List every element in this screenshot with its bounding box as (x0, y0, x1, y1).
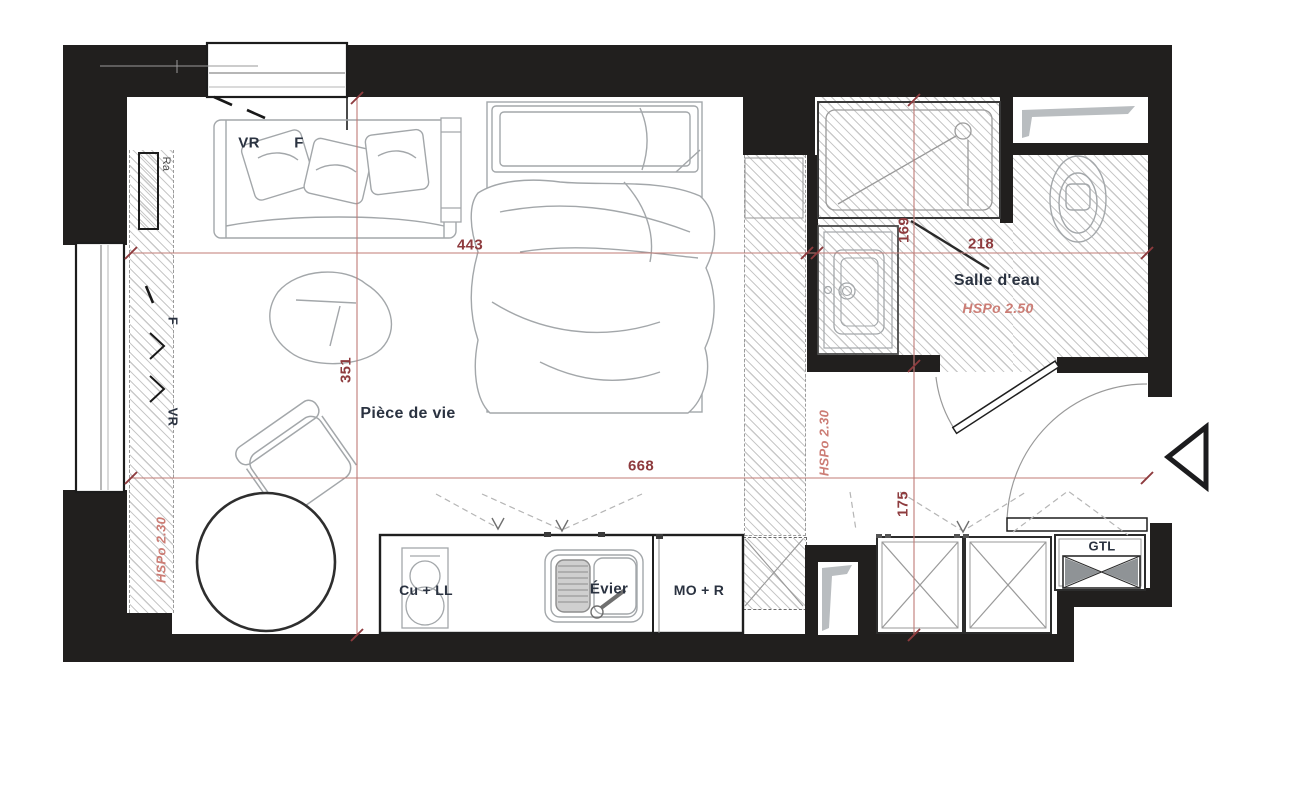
side-shelf (441, 118, 461, 222)
window-top (207, 43, 347, 130)
ceiling-height-middle: HSPo 2.30 (817, 410, 832, 476)
floor-plan: VR F Ra F VR HSPo 2.30 HSPo 2.30 Pièce d… (0, 0, 1314, 800)
dim-living-width: 443 (457, 237, 483, 254)
blind-label-left: VR (166, 408, 181, 427)
closet-hatched-x (745, 539, 803, 606)
window-label-left: F (166, 317, 181, 325)
entry-door (1007, 384, 1147, 531)
window-label-top: F (294, 135, 303, 152)
entrance-arrow-icon (1168, 427, 1206, 487)
bed (471, 102, 714, 413)
coffee-table (270, 272, 392, 364)
blind-label-top: VR (238, 135, 259, 152)
dim-total-width: 668 (628, 458, 654, 475)
dim-living-depth: 351 (338, 357, 355, 383)
fixture-label-gtl: GTL (1089, 539, 1116, 554)
dim-bath-depth: 169 (896, 217, 913, 243)
gtl-bowtie-icon (1063, 556, 1140, 588)
round-table (197, 493, 335, 631)
bathroom-shelf (1015, 100, 1147, 142)
duct-box (745, 158, 803, 218)
wardrobe-2 (965, 537, 1051, 633)
radiator-label: Ra (160, 157, 172, 172)
fixture-label-sink: Évier (590, 581, 628, 598)
window-swing-marks (150, 333, 164, 402)
wall-niche (818, 562, 858, 635)
vanity-sink (818, 226, 898, 354)
ceiling-height-left: HSPo 2.30 (154, 517, 169, 583)
floor-plan-drawing (0, 0, 1314, 800)
fixture-label-micro-fridge: MO + R (674, 582, 724, 598)
shower (818, 102, 1000, 218)
wardrobe-1 (877, 537, 963, 633)
fixture-label-cooktop: Cu + LL (399, 582, 453, 598)
window-left (76, 243, 124, 492)
dim-entry-depth: 175 (895, 491, 912, 517)
room-label-bathroom: Salle d'eau (954, 272, 1040, 290)
blind-marks (146, 97, 265, 303)
cabinet-arrows (492, 518, 969, 532)
room-label-living: Pièce de vie (360, 405, 455, 423)
bathroom-door (936, 361, 1059, 433)
dim-bath-width: 218 (968, 236, 994, 253)
toilet (1050, 156, 1106, 242)
ceiling-height-bathroom: HSPo 2.50 (962, 300, 1033, 316)
